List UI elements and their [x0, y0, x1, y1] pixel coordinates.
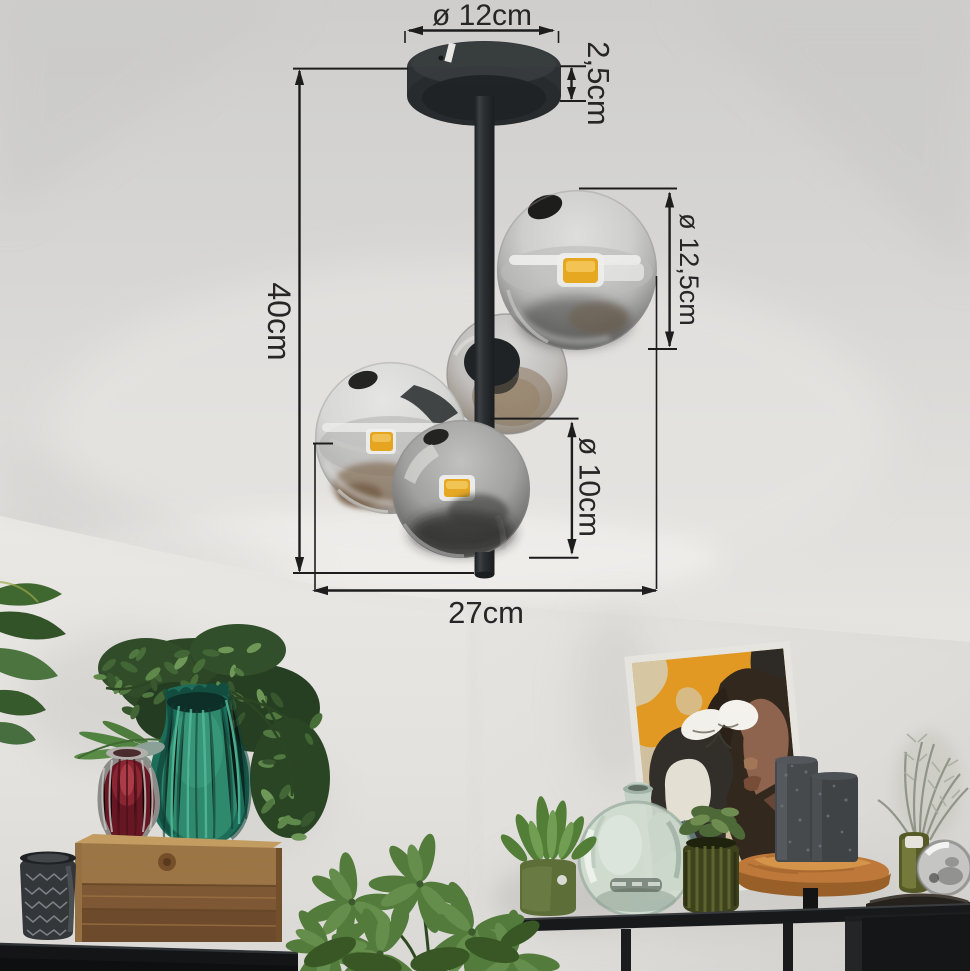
- svg-text:ø 10cm: ø 10cm: [573, 437, 606, 537]
- svg-text:40cm: 40cm: [261, 282, 297, 360]
- svg-text:27cm: 27cm: [448, 595, 524, 630]
- svg-text:2,5cm: 2,5cm: [581, 41, 616, 125]
- svg-text:ø 12,5cm: ø 12,5cm: [674, 213, 704, 326]
- svg-text:ø 12cm: ø 12cm: [432, 0, 532, 32]
